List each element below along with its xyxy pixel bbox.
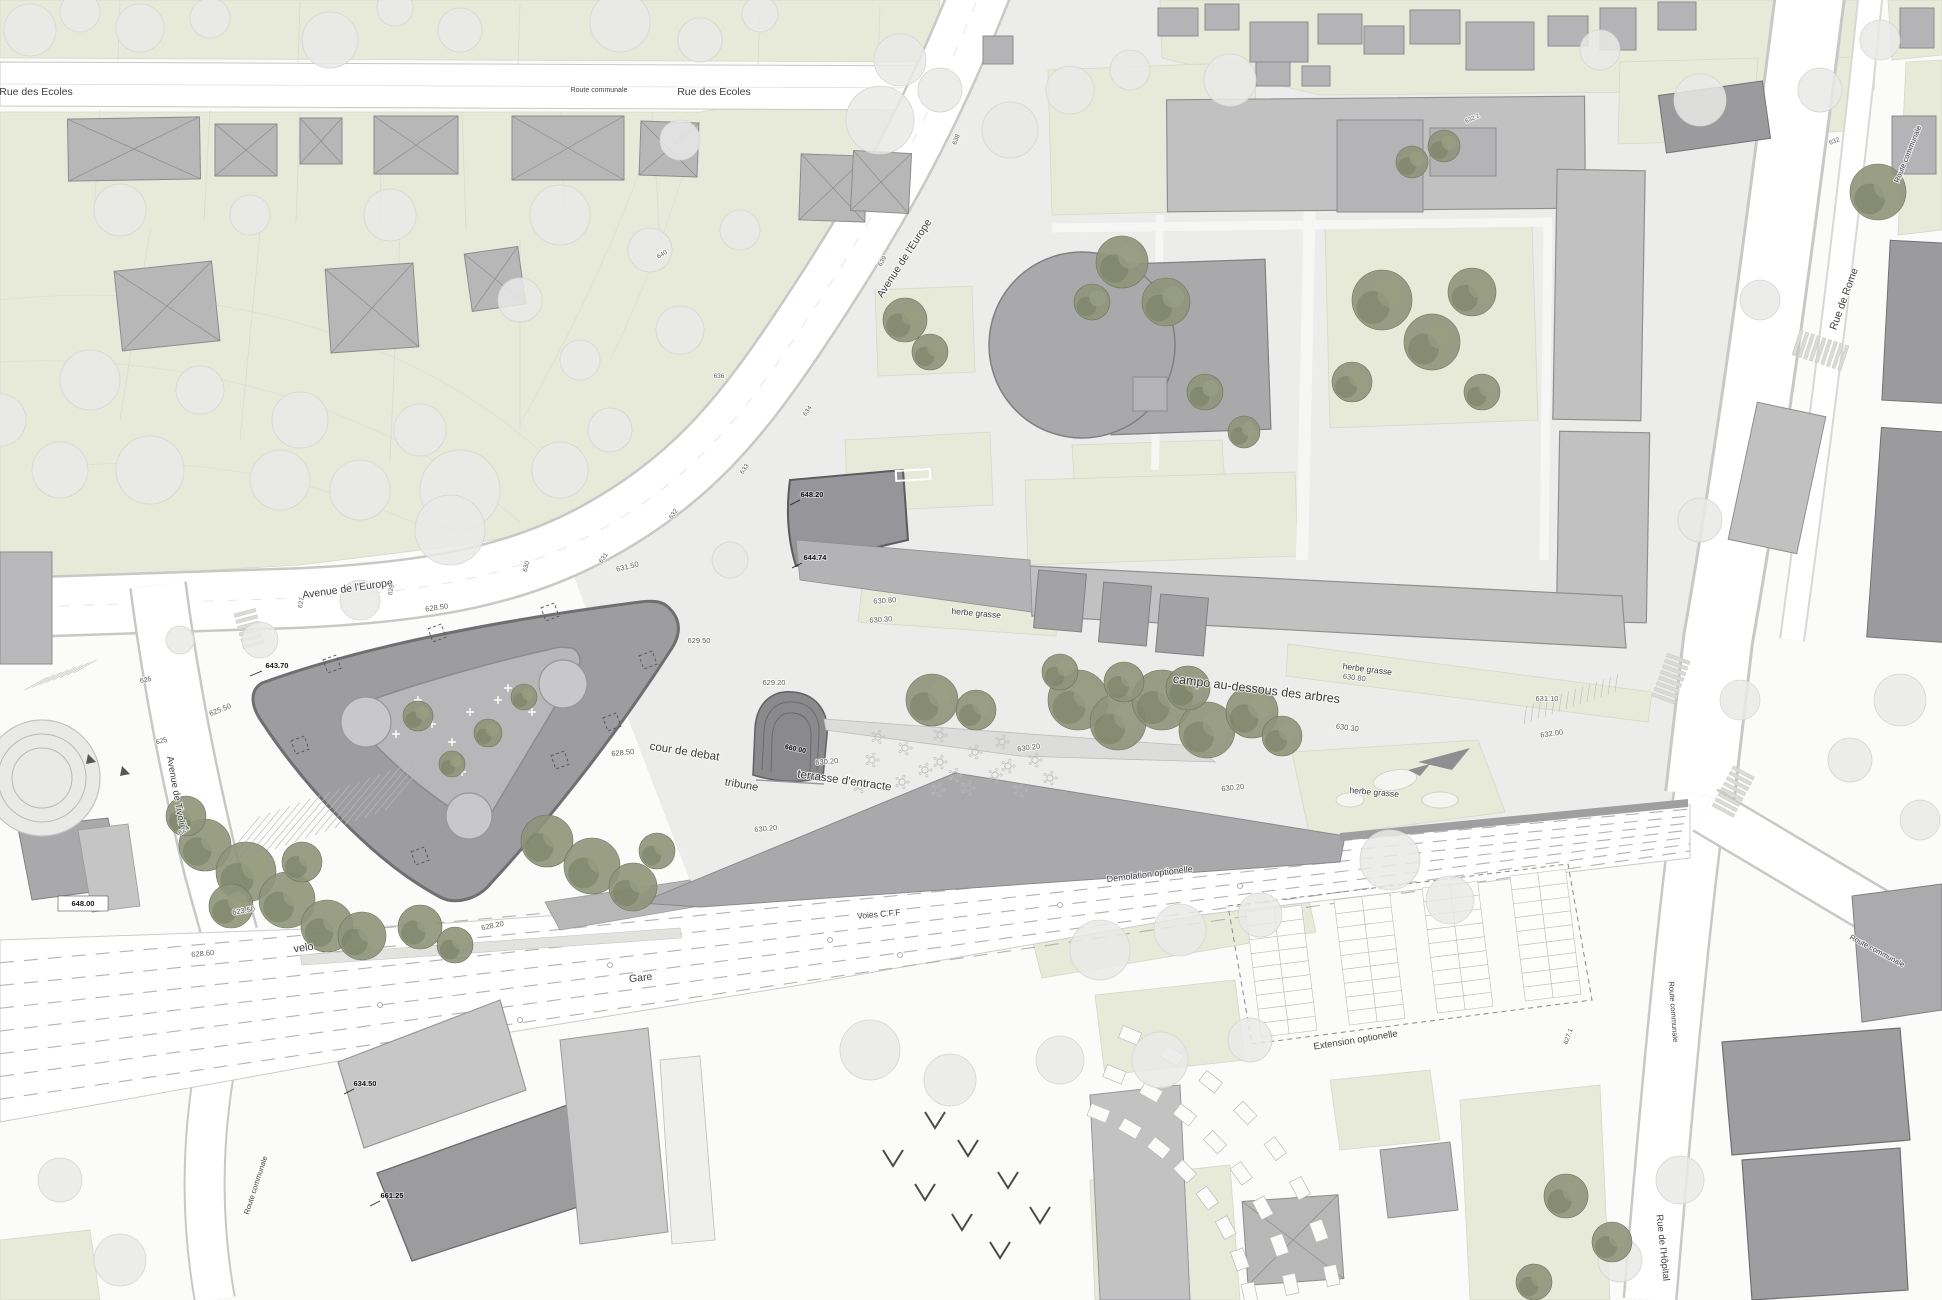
planted-tree (1428, 130, 1460, 162)
label-elev-630-80-a: 630.80 (873, 595, 897, 606)
label-elev-629-20: 629.20 (763, 678, 786, 687)
planted-tree (437, 927, 473, 963)
existing-tree (250, 450, 310, 510)
existing-tree (330, 460, 390, 520)
planted-tree (1332, 362, 1372, 402)
existing-tree (230, 195, 270, 235)
rail-signal (898, 953, 903, 958)
label-spot-643-70: 643.70 (266, 661, 289, 670)
existing-tree (1720, 680, 1760, 720)
planted-tree (1396, 146, 1428, 178)
planted-tree (1592, 1222, 1632, 1262)
label-rue-des-ecoles-2: Rue des Ecoles (677, 86, 751, 98)
existing-tree (656, 306, 704, 354)
existing-tree (38, 1158, 82, 1202)
s-building-2 (1380, 1142, 1458, 1218)
label-rue-des-ecoles-1: Rue des Ecoles (0, 86, 73, 98)
label-elev-631-10: 631.10 (1536, 694, 1559, 703)
label-gare: Gare (628, 971, 653, 985)
existing-tree (116, 4, 164, 52)
existing-tree (1204, 54, 1256, 106)
existing-tree (32, 442, 88, 498)
existing-tree (1828, 738, 1872, 782)
hip-roof-house (67, 117, 200, 181)
existing-tree (530, 185, 590, 245)
pavilion-3 (1156, 594, 1209, 656)
hip-roof-house (850, 151, 911, 214)
hip-roof-house (300, 118, 342, 164)
existing-tree (166, 626, 194, 654)
small-building (1302, 66, 1330, 86)
existing-tree (874, 34, 926, 86)
small-building (1410, 10, 1460, 44)
existing-tree (394, 404, 446, 456)
existing-tree (94, 1234, 146, 1286)
existing-tree (1874, 674, 1926, 726)
existing-tree (924, 1054, 976, 1106)
planted-tree (1104, 662, 1144, 702)
existing-tree (1674, 74, 1726, 126)
planted-tree (1228, 416, 1260, 448)
existing-tree (532, 442, 588, 498)
existing-tree (1798, 68, 1842, 112)
plaza-circle-3 (446, 793, 492, 839)
small-building (1250, 22, 1308, 62)
label-elev-636: 636 (714, 373, 725, 380)
existing-tree (1656, 1156, 1704, 1204)
west-edge-slab (0, 552, 52, 664)
plaza-circle-1 (539, 660, 587, 708)
existing-tree (560, 340, 600, 380)
planted-tree (639, 833, 675, 869)
existing-tree (1580, 30, 1620, 70)
existing-tree (1426, 876, 1474, 924)
existing-tree (1036, 1036, 1084, 1084)
label-spot-634-50: 634.50 (354, 1079, 377, 1088)
label-route-communale-top: Route communale (571, 87, 628, 94)
small-building (1256, 62, 1290, 86)
small-building (1133, 377, 1167, 411)
existing-tree (415, 495, 485, 565)
green-lawn-4 (1025, 472, 1298, 565)
existing-tree (1132, 1032, 1188, 1088)
rail-signal (1058, 903, 1063, 908)
se-building-1 (1722, 1028, 1910, 1155)
existing-tree (588, 408, 632, 452)
small-building (1205, 4, 1239, 30)
label-elev-630-30-a: 630.30 (869, 614, 893, 625)
planted-tree (956, 690, 996, 730)
plaza-circle-2 (341, 697, 391, 747)
green-se-2 (1330, 1070, 1440, 1150)
planted-tree (1262, 716, 1302, 756)
planted-tree (1352, 270, 1412, 330)
planted-tree (282, 842, 322, 882)
existing-tree (742, 0, 778, 32)
planted-tree (1042, 654, 1078, 690)
hip-roof-house (114, 261, 220, 351)
existing-tree (1228, 1018, 1272, 1062)
planted-tree (1516, 1264, 1552, 1300)
planted-tree (1448, 268, 1496, 316)
existing-tree (176, 366, 224, 414)
existing-tree (116, 436, 184, 504)
existing-tree (712, 542, 748, 578)
planted-tree (1187, 374, 1223, 410)
hip-roof-house (325, 263, 419, 353)
small-building (983, 36, 1013, 64)
rail-signal (378, 1003, 383, 1008)
rail-signal (828, 938, 833, 943)
existing-tree (678, 18, 722, 62)
planted-tree (474, 719, 502, 747)
existing-tree (190, 0, 230, 38)
rome-east-slab-1 (1882, 240, 1942, 403)
planted-tree (1464, 374, 1500, 410)
planted-tree (338, 912, 386, 960)
existing-tree (846, 86, 914, 154)
existing-tree (1900, 800, 1940, 840)
label-spot-644-74: 644.74 (804, 553, 828, 562)
rail-signal (518, 1018, 523, 1023)
label-spot-648-20: 648.20 (801, 490, 824, 499)
planted-tree (1404, 314, 1460, 370)
label-spot-648-00: 648.00 (72, 899, 95, 908)
existing-tree (1110, 50, 1150, 90)
rail-signal (1238, 884, 1243, 889)
hip-roof-house (512, 116, 624, 180)
existing-tree (272, 392, 328, 448)
small-building (1658, 2, 1696, 30)
campus-east-slab-1 (1553, 169, 1645, 420)
existing-tree (302, 12, 358, 68)
existing-tree (498, 278, 542, 322)
planted-tree (398, 905, 442, 949)
planted-tree (439, 751, 465, 777)
existing-tree (1860, 20, 1900, 60)
existing-tree (1678, 498, 1722, 542)
planted-tree (1142, 278, 1190, 326)
small-building (1900, 8, 1934, 48)
existing-tree (1238, 893, 1282, 937)
existing-tree (4, 4, 56, 56)
pavilion-2 (1098, 582, 1151, 646)
planted-tree (906, 674, 958, 726)
small-building (1158, 8, 1198, 36)
small-building (1466, 22, 1534, 70)
existing-tree (982, 102, 1038, 158)
existing-tree (918, 68, 962, 112)
existing-tree (242, 622, 278, 658)
existing-tree (1360, 830, 1420, 890)
existing-tree (60, 350, 120, 410)
small-building (1318, 14, 1362, 44)
planted-tree (1074, 284, 1110, 320)
label-spot-661-25: 661.25 (381, 1191, 404, 1200)
hip-roof-house (374, 116, 458, 174)
existing-tree (1154, 904, 1206, 956)
existing-tree (438, 8, 482, 52)
planted-tree (511, 684, 537, 710)
se-building-2 (1742, 1148, 1908, 1300)
existing-tree (94, 184, 146, 236)
planted-tree (912, 334, 948, 370)
label-elev-629-50: 629.50 (688, 636, 711, 645)
rail-signal (608, 963, 613, 968)
se-building-3 (1852, 884, 1942, 1022)
existing-tree (840, 1020, 900, 1080)
planted-tree (883, 298, 927, 342)
green-sw-1 (0, 1230, 100, 1300)
existing-tree (1070, 920, 1130, 980)
pavilion-1 (1034, 570, 1087, 632)
hip-roof-house (215, 124, 277, 176)
existing-tree (1740, 280, 1780, 320)
existing-tree (364, 189, 416, 241)
existing-tree (1046, 66, 1094, 114)
site-plan-canvas: Rue des EcolesRoute communaleRue des Eco… (0, 0, 1942, 1300)
planted-tree (1096, 236, 1148, 288)
existing-tree (660, 120, 700, 160)
small-building (1364, 26, 1404, 54)
planted-tree (1544, 1174, 1588, 1218)
planted-tree (403, 701, 433, 731)
existing-tree (720, 210, 760, 250)
planted-tree (609, 863, 657, 911)
